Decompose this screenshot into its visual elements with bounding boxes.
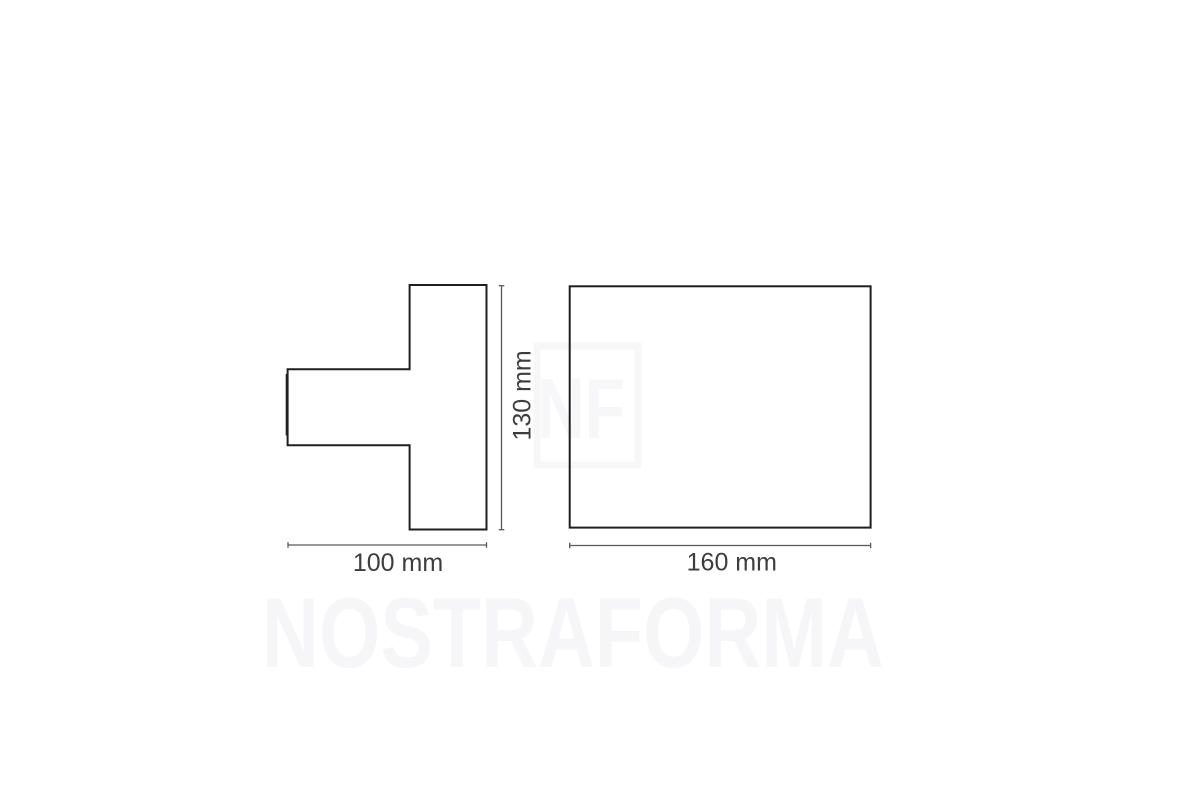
svg-text:130 mm: 130 mm: [509, 350, 537, 440]
svg-text:100 mm: 100 mm: [353, 549, 443, 577]
svg-text:NOSTRAFORMA: NOSTRAFORMA: [262, 577, 884, 688]
svg-text:NF: NF: [537, 362, 625, 457]
svg-text:160 mm: 160 mm: [687, 549, 777, 577]
